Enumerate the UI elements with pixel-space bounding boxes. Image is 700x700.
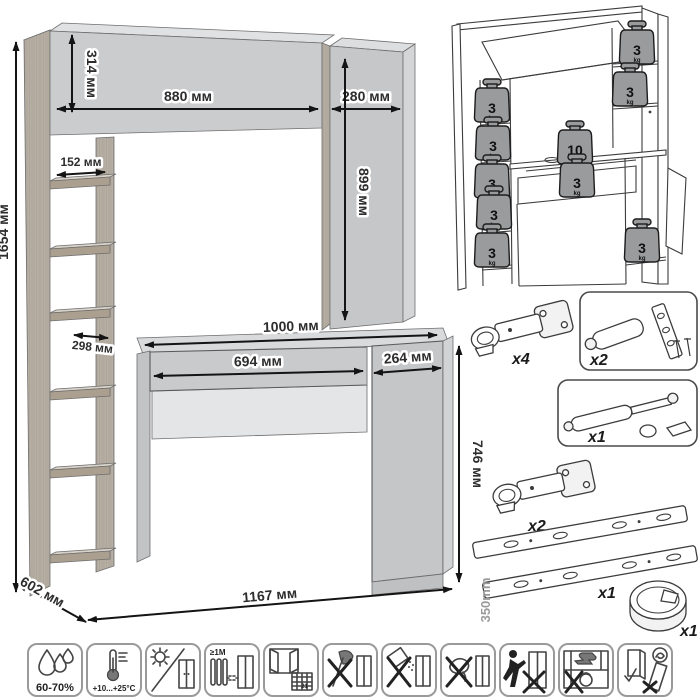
svg-text:3: 3: [626, 84, 634, 100]
care-icons-row: 60-70% +10...+25°C: [27, 643, 677, 699]
hardware-list: x4 x2: [440, 288, 700, 640]
no-overloading-icon: [558, 643, 614, 697]
desk-left-panel: [137, 351, 150, 562]
svg-text:≥1М: ≥1М: [210, 648, 226, 657]
no-abrasives-icon: [381, 643, 437, 697]
humidity-icon: 60-70%: [27, 643, 83, 697]
dim-shelf-depth: 298 мм: [71, 338, 113, 356]
hinge-top-qty: x4: [511, 351, 530, 368]
no-dragging-icon: [499, 643, 555, 697]
svg-text:kg: kg: [573, 191, 580, 197]
svg-text:kg: kg: [488, 261, 495, 267]
slide-length-label: 350mm: [478, 578, 493, 623]
dim-total-height: 1654 мм: [0, 204, 11, 260]
svg-text:3: 3: [490, 207, 498, 223]
transport-upright-icon: [617, 643, 673, 697]
hardware-hinge-top: [467, 299, 574, 357]
weight-3kg: 3 kg: [474, 224, 509, 267]
no-direct-sunlight-icon: [145, 643, 201, 697]
gas-lift-qty: x1: [587, 429, 606, 446]
svg-text:21: 21: [301, 684, 308, 690]
hardware-gas-lift: x1: [558, 380, 697, 446]
svg-text:3: 3: [489, 138, 497, 154]
svg-text:+10...+25°C: +10...+25°C: [93, 684, 136, 693]
right-cabinet-side: [403, 44, 415, 322]
dim-right-cabinet-height: 899 мм: [356, 168, 372, 216]
svg-text:60-70%: 60-70%: [36, 682, 74, 694]
furniture-assembly-sheet: 1654 мм 314 мм 880 мм 280 мм 899 мм 152 …: [0, 0, 700, 700]
knee-space-back: [152, 385, 367, 439]
dim-bridge-height: 314 мм: [84, 50, 100, 98]
door-damper-qty: x2: [589, 352, 608, 369]
dim-pedestal-width: 264 мм: [383, 347, 432, 366]
hardware-hinge-bottom: [490, 459, 597, 513]
heat-distance-icon: ≥1М: [204, 643, 260, 697]
cable-grommet-qty: x1: [679, 623, 698, 640]
svg-text:kg: kg: [626, 100, 633, 106]
hardware-door-damper: x2: [580, 292, 697, 370]
no-wet-cleaning-icon: [440, 643, 496, 697]
dimension-diagram: 1654 мм 314 мм 880 мм 280 мм 899 мм 152 …: [0, 4, 470, 654]
temperature-icon: +10...+25°C: [86, 643, 142, 697]
svg-text:3: 3: [633, 42, 641, 58]
dim-right-cabinet-width: 280 мм: [342, 88, 390, 104]
ventilation-icon: 21: [263, 643, 319, 697]
svg-text:3: 3: [488, 245, 496, 261]
svg-text:3: 3: [638, 240, 646, 256]
svg-text:kg: kg: [638, 256, 645, 262]
load-diagram: 3 kg 3 kg 3 kg 3 kg 3 kg 3 kg 3 kg 10: [430, 0, 700, 300]
dim-drawer-width: 694 мм: [234, 353, 282, 370]
svg-text:3: 3: [488, 100, 496, 116]
svg-text:3: 3: [573, 175, 581, 191]
drawer-slides-qty: x1: [597, 585, 616, 602]
no-sharp-impact-icon: [322, 643, 378, 697]
dim-shelf-width: 152 мм: [60, 155, 101, 169]
hardware-cable-grommet: x1: [630, 581, 698, 640]
dim-bridge-width: 880 мм: [164, 88, 212, 104]
dim-desktop-width: 1000 мм: [263, 317, 319, 335]
pedestal-door: [372, 341, 443, 582]
